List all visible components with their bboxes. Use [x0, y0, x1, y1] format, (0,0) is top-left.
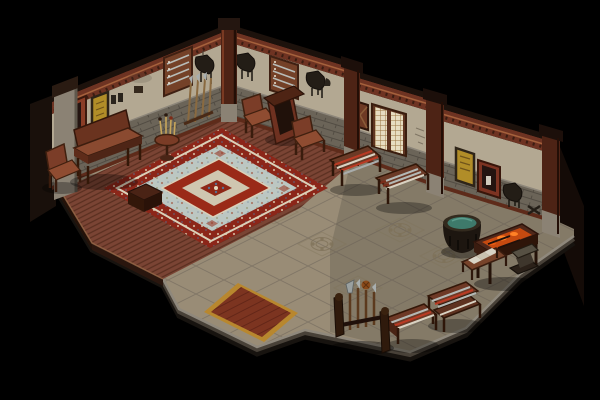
game-viewport — [0, 0, 600, 400]
pillar-jog-2 — [423, 88, 447, 198]
iso-scene — [0, 0, 600, 400]
lattice-window — [372, 104, 406, 156]
pillar-north-corner — [218, 18, 240, 122]
pillar-east-end — [539, 124, 563, 238]
nw-plaster-stain — [128, 73, 152, 83]
scroll-2 — [456, 148, 474, 186]
red-panel-2 — [478, 160, 500, 198]
